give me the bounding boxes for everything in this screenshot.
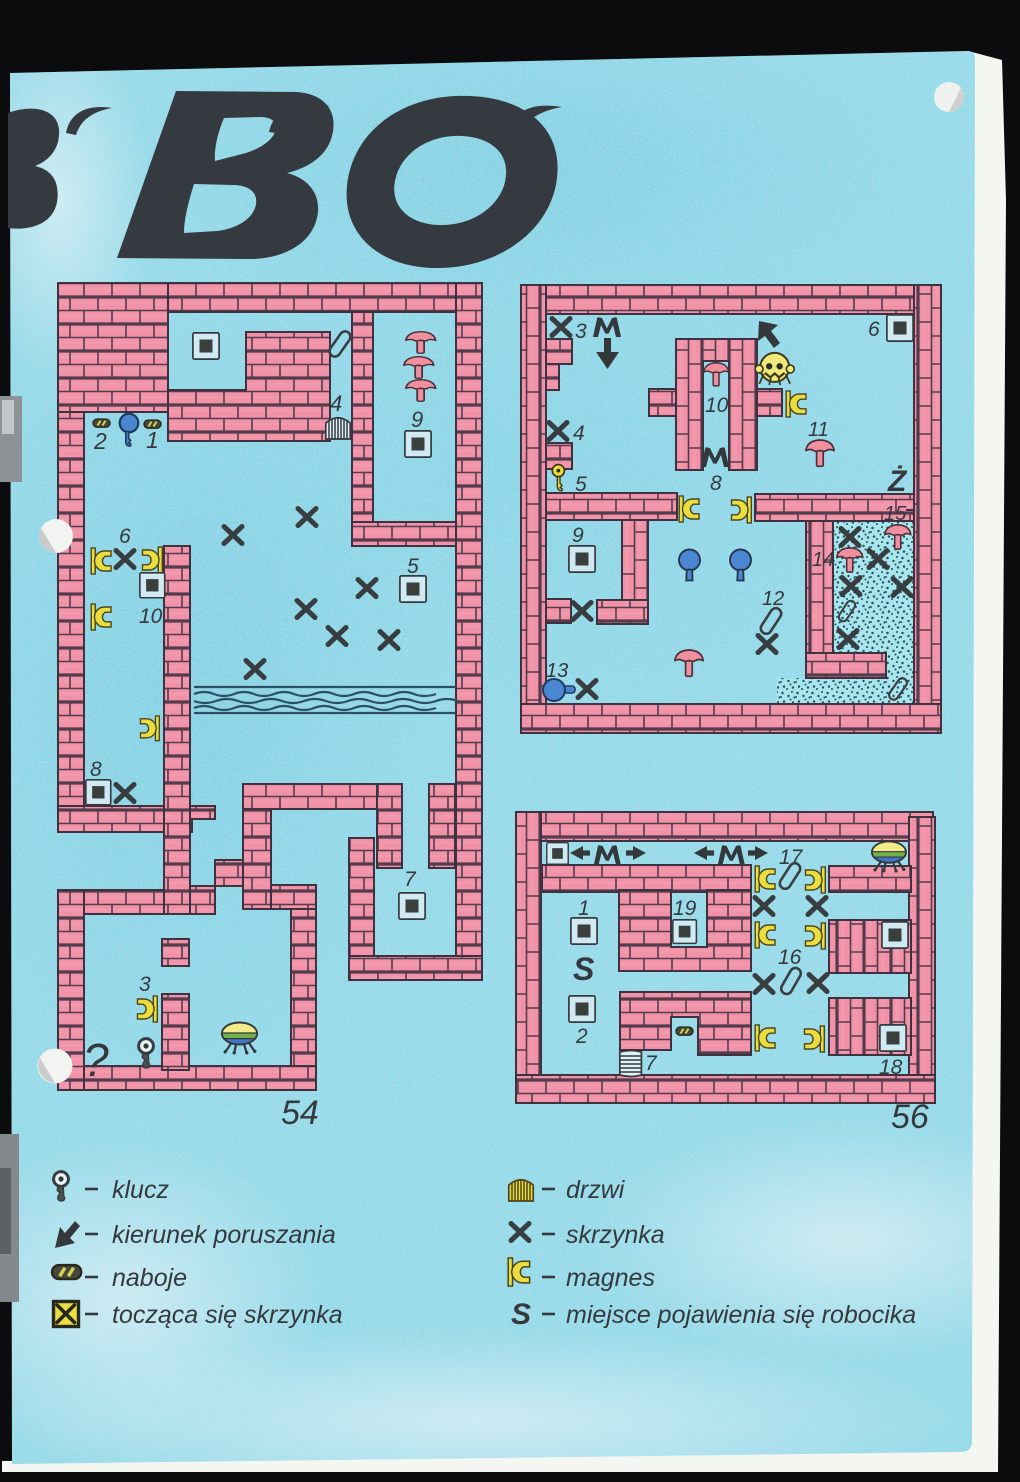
- svg-text:7: 7: [645, 1052, 658, 1075]
- svg-text:Ż: Ż: [887, 465, 908, 498]
- svg-text:19: 19: [673, 897, 697, 920]
- svg-text:10: 10: [139, 605, 163, 628]
- svg-text:skrzynka: skrzynka: [566, 1221, 665, 1249]
- svg-text:miejsce pojawienia się robocik: miejsce pojawienia się robocika: [566, 1301, 916, 1329]
- svg-text:16: 16: [778, 946, 802, 969]
- svg-text:tocząca się skrzynka: tocząca się skrzynka: [112, 1301, 343, 1329]
- svg-text:S: S: [573, 951, 595, 987]
- svg-text:15: 15: [884, 503, 907, 525]
- svg-text:11: 11: [808, 419, 829, 441]
- svg-text:2: 2: [575, 1025, 588, 1048]
- svg-text:9: 9: [572, 524, 584, 547]
- svg-text:4: 4: [330, 391, 342, 416]
- svg-text:1: 1: [146, 427, 159, 453]
- svg-text:7: 7: [404, 868, 417, 891]
- svg-text:S: S: [511, 1298, 531, 1331]
- svg-text:9: 9: [411, 407, 423, 432]
- svg-text:12: 12: [762, 588, 784, 610]
- svg-text:2: 2: [93, 428, 107, 454]
- svg-text:4: 4: [573, 422, 585, 445]
- svg-text:8: 8: [90, 758, 102, 781]
- svg-text:1: 1: [578, 897, 590, 920]
- svg-text:magnes: magnes: [566, 1264, 655, 1292]
- svg-text:drzwi: drzwi: [566, 1176, 626, 1204]
- svg-text:18: 18: [879, 1056, 903, 1079]
- svg-text:56: 56: [891, 1098, 929, 1136]
- svg-text:5: 5: [407, 555, 419, 578]
- svg-text:3: 3: [139, 973, 151, 996]
- svg-text:naboje: naboje: [112, 1264, 187, 1292]
- svg-text:8: 8: [710, 472, 722, 495]
- svg-text:14: 14: [812, 549, 834, 571]
- svg-text:54: 54: [281, 1094, 319, 1132]
- svg-text:6: 6: [868, 318, 880, 341]
- svg-text:klucz: klucz: [112, 1176, 169, 1204]
- svg-text:?: ?: [83, 1034, 109, 1086]
- svg-text:3: 3: [575, 320, 587, 343]
- svg-text:5: 5: [575, 473, 587, 496]
- svg-text:10: 10: [705, 394, 729, 417]
- svg-text:kierunek poruszania: kierunek poruszania: [112, 1221, 336, 1249]
- svg-text:6: 6: [119, 525, 131, 548]
